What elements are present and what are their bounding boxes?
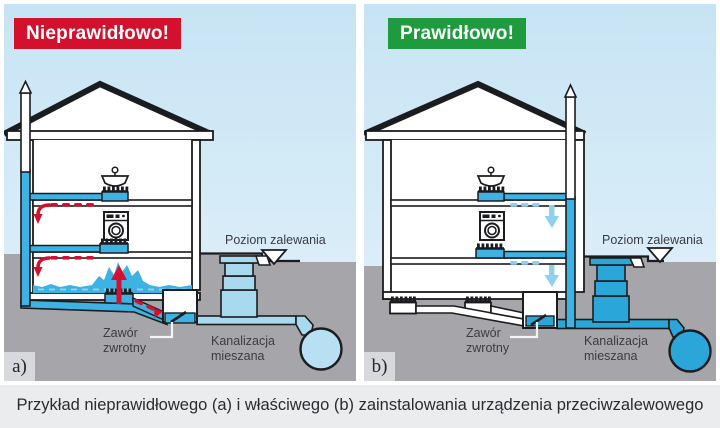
flood-level-label: Poziom zalewania (602, 233, 703, 248)
sink-drain-pipe (29, 194, 104, 201)
sewer-main (670, 331, 711, 372)
panel-letter: a) (4, 352, 35, 381)
diagram-incorrect (4, 4, 356, 381)
figure: Nieprawidłowo! Poziom zalewania Zawór zw… (0, 0, 720, 428)
washer-drain-pipe (29, 246, 102, 253)
sewer-label: Kanalizacja mieszana (211, 334, 275, 364)
panel-incorrect: Nieprawidłowo! Poziom zalewania Zawór zw… (4, 4, 356, 381)
backflow-up-arrow-icon (117, 278, 122, 304)
correct-banner: Prawidłowo! (388, 18, 526, 49)
right-wall (192, 140, 200, 290)
sink-drain-pipe (504, 194, 568, 201)
vent-arrow-icon (20, 82, 31, 94)
floor-band-2 (391, 258, 574, 264)
figure-caption: Przykład nieprawidłowego (a) i właściweg… (0, 385, 720, 428)
washing-machine-icon (480, 212, 504, 240)
check-valve-label: Zawór zwrotny (466, 326, 509, 356)
check-valve-label: Zawór zwrotny (103, 326, 146, 356)
flood-level-label: Poziom zalewania (225, 233, 326, 248)
sewer-label: Kanalizacja mieszana (584, 334, 648, 364)
cornice (7, 131, 213, 140)
vent-stack (565, 85, 576, 328)
vent-stack (20, 82, 31, 307)
left-wall (383, 140, 391, 299)
check-valve-chamber (163, 290, 197, 323)
washer-drain-pipe (504, 252, 568, 259)
sewer-main (301, 329, 342, 370)
incorrect-banner: Nieprawidłowo! (14, 18, 181, 49)
washing-machine-icon (104, 212, 128, 240)
cornice (366, 131, 584, 140)
attic (370, 88, 582, 131)
check-valve-chamber (523, 292, 557, 328)
vent-arrow-icon (565, 85, 576, 97)
diagram-correct (364, 4, 716, 381)
panel-letter: b) (364, 352, 395, 381)
attic (12, 88, 204, 131)
panel-correct: Prawidłowo! Poziom zalewania Zawór zwrot… (364, 4, 716, 381)
